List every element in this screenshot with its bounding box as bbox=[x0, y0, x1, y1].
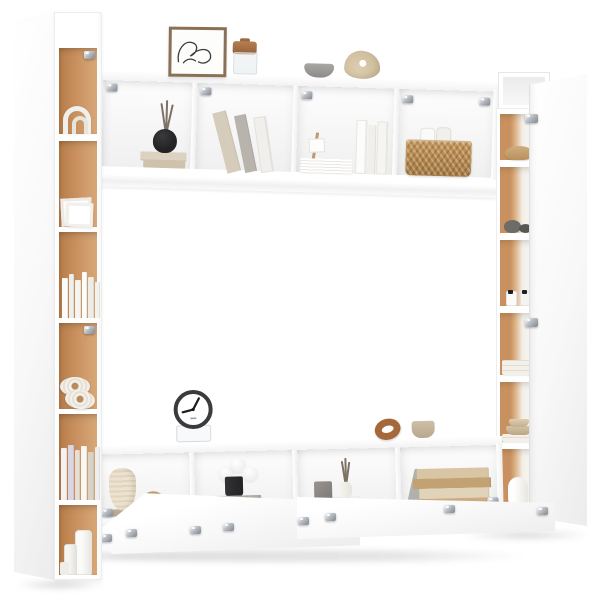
shelf-compartment bbox=[296, 86, 395, 175]
door-hinge-icon bbox=[444, 505, 455, 513]
shelf-compartment bbox=[397, 89, 494, 178]
cork-jar bbox=[232, 41, 257, 75]
bookcase-cell bbox=[59, 323, 97, 409]
door-hinge-icon bbox=[190, 526, 201, 534]
cylinder-vases bbox=[60, 531, 96, 575]
gray-cube bbox=[314, 481, 332, 499]
alarm-clock bbox=[169, 388, 218, 444]
straw-hat bbox=[505, 146, 533, 160]
door-hinge-icon bbox=[298, 517, 309, 525]
door-hinge-icon bbox=[525, 114, 538, 123]
door-hinge-icon bbox=[126, 529, 137, 537]
bookcase-cell bbox=[59, 414, 97, 500]
bookcase-column bbox=[54, 12, 102, 580]
wicker-basket bbox=[405, 139, 472, 177]
reed-diffuser bbox=[153, 125, 178, 154]
top-wall-shelf bbox=[94, 70, 499, 200]
small-bottles bbox=[506, 288, 532, 306]
door-hinge-icon bbox=[325, 513, 336, 521]
door-hinge-icon bbox=[537, 507, 548, 515]
bookcase-cell bbox=[59, 141, 97, 227]
white-book-row bbox=[62, 272, 100, 318]
wall-bracket-icon bbox=[84, 326, 95, 334]
beige-vase bbox=[344, 50, 381, 79]
picture-frames bbox=[60, 193, 96, 227]
door-hinge-icon bbox=[525, 318, 538, 327]
bookcase-cell bbox=[59, 232, 97, 318]
shelf-compartment bbox=[101, 80, 193, 169]
leaning-books bbox=[221, 104, 285, 172]
bookcase-cell bbox=[59, 505, 97, 575]
line-art-drawing bbox=[171, 30, 217, 69]
standing-books bbox=[355, 120, 389, 175]
wall-bracket-icon bbox=[402, 95, 413, 103]
wall-art-frame bbox=[168, 27, 227, 78]
wall-bracket-icon bbox=[479, 97, 490, 105]
mini-easel bbox=[306, 132, 325, 161]
right-cabinet bbox=[496, 72, 586, 530]
left-bookcase bbox=[14, 10, 102, 586]
bookcase-door bbox=[14, 18, 55, 580]
rope-coil-disc bbox=[64, 388, 96, 411]
flower-pot bbox=[225, 476, 243, 496]
ceramic-cup bbox=[411, 421, 434, 439]
pastel-book-row bbox=[61, 442, 100, 500]
hinge-icon bbox=[102, 509, 113, 517]
book-stack bbox=[140, 151, 186, 168]
wall-bracket-icon bbox=[106, 83, 117, 91]
product-photo bbox=[0, 0, 600, 600]
cabinet-door bbox=[529, 74, 587, 526]
door-hinge-icon bbox=[101, 534, 112, 542]
reed-vase bbox=[338, 481, 352, 499]
bookcase-cell bbox=[59, 48, 97, 134]
bowl-stack bbox=[506, 418, 532, 435]
wall-bracket-icon bbox=[301, 91, 312, 99]
door-hinge-icon bbox=[223, 523, 234, 531]
wall-bracket-icon bbox=[200, 87, 211, 95]
arch-ornament bbox=[63, 104, 93, 134]
shelf-compartment bbox=[195, 83, 294, 172]
paper-stack bbox=[300, 158, 352, 174]
wall-bracket-icon bbox=[84, 51, 95, 59]
